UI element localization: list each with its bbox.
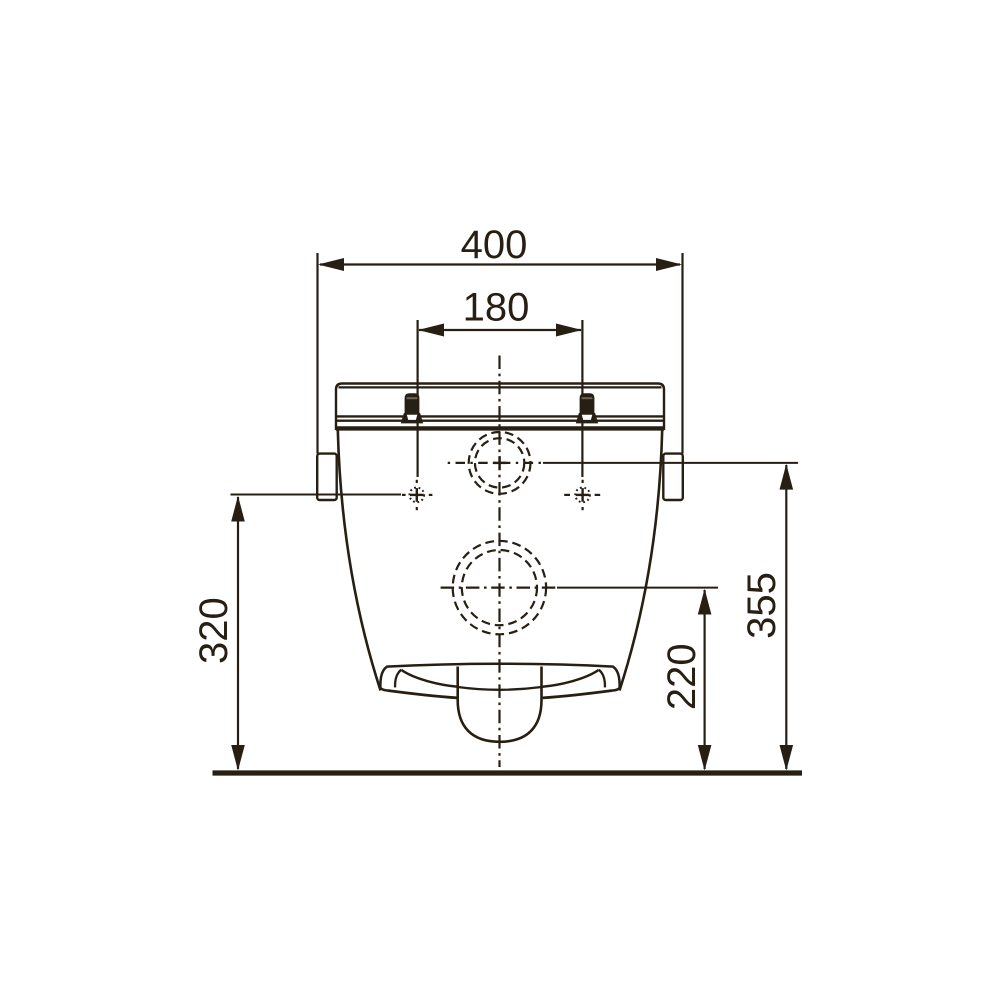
svg-text:320: 320 bbox=[192, 597, 236, 664]
svg-text:355: 355 bbox=[740, 572, 784, 639]
svg-text:400: 400 bbox=[461, 223, 528, 267]
svg-text:220: 220 bbox=[660, 643, 704, 710]
svg-text:180: 180 bbox=[463, 286, 530, 330]
